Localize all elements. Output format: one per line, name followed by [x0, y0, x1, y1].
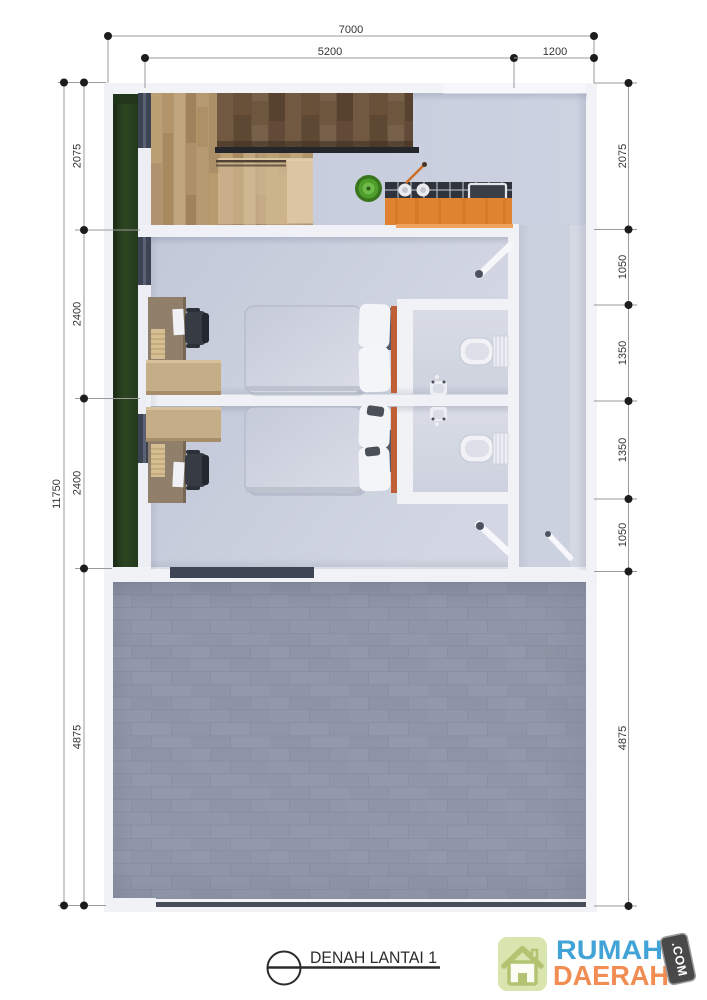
svg-text:1050: 1050	[617, 255, 629, 279]
svg-text:11750: 11750	[51, 479, 63, 509]
svg-text:DENAH LANTAI 1: DENAH LANTAI 1	[310, 948, 437, 967]
svg-text:2400: 2400	[72, 302, 84, 326]
svg-text:DAERAH: DAERAH	[553, 960, 669, 991]
svg-text:4875: 4875	[72, 725, 84, 749]
svg-text:2075: 2075	[72, 144, 84, 168]
svg-text:1050: 1050	[617, 523, 629, 547]
svg-text:4875: 4875	[617, 726, 629, 750]
svg-text:2075: 2075	[617, 144, 629, 168]
svg-text:5200: 5200	[318, 46, 342, 58]
svg-text:7000: 7000	[339, 24, 363, 36]
svg-text:2400: 2400	[72, 471, 84, 495]
svg-text:1200: 1200	[543, 46, 567, 58]
svg-text:1350: 1350	[617, 438, 629, 462]
svg-text:1350: 1350	[617, 341, 629, 365]
